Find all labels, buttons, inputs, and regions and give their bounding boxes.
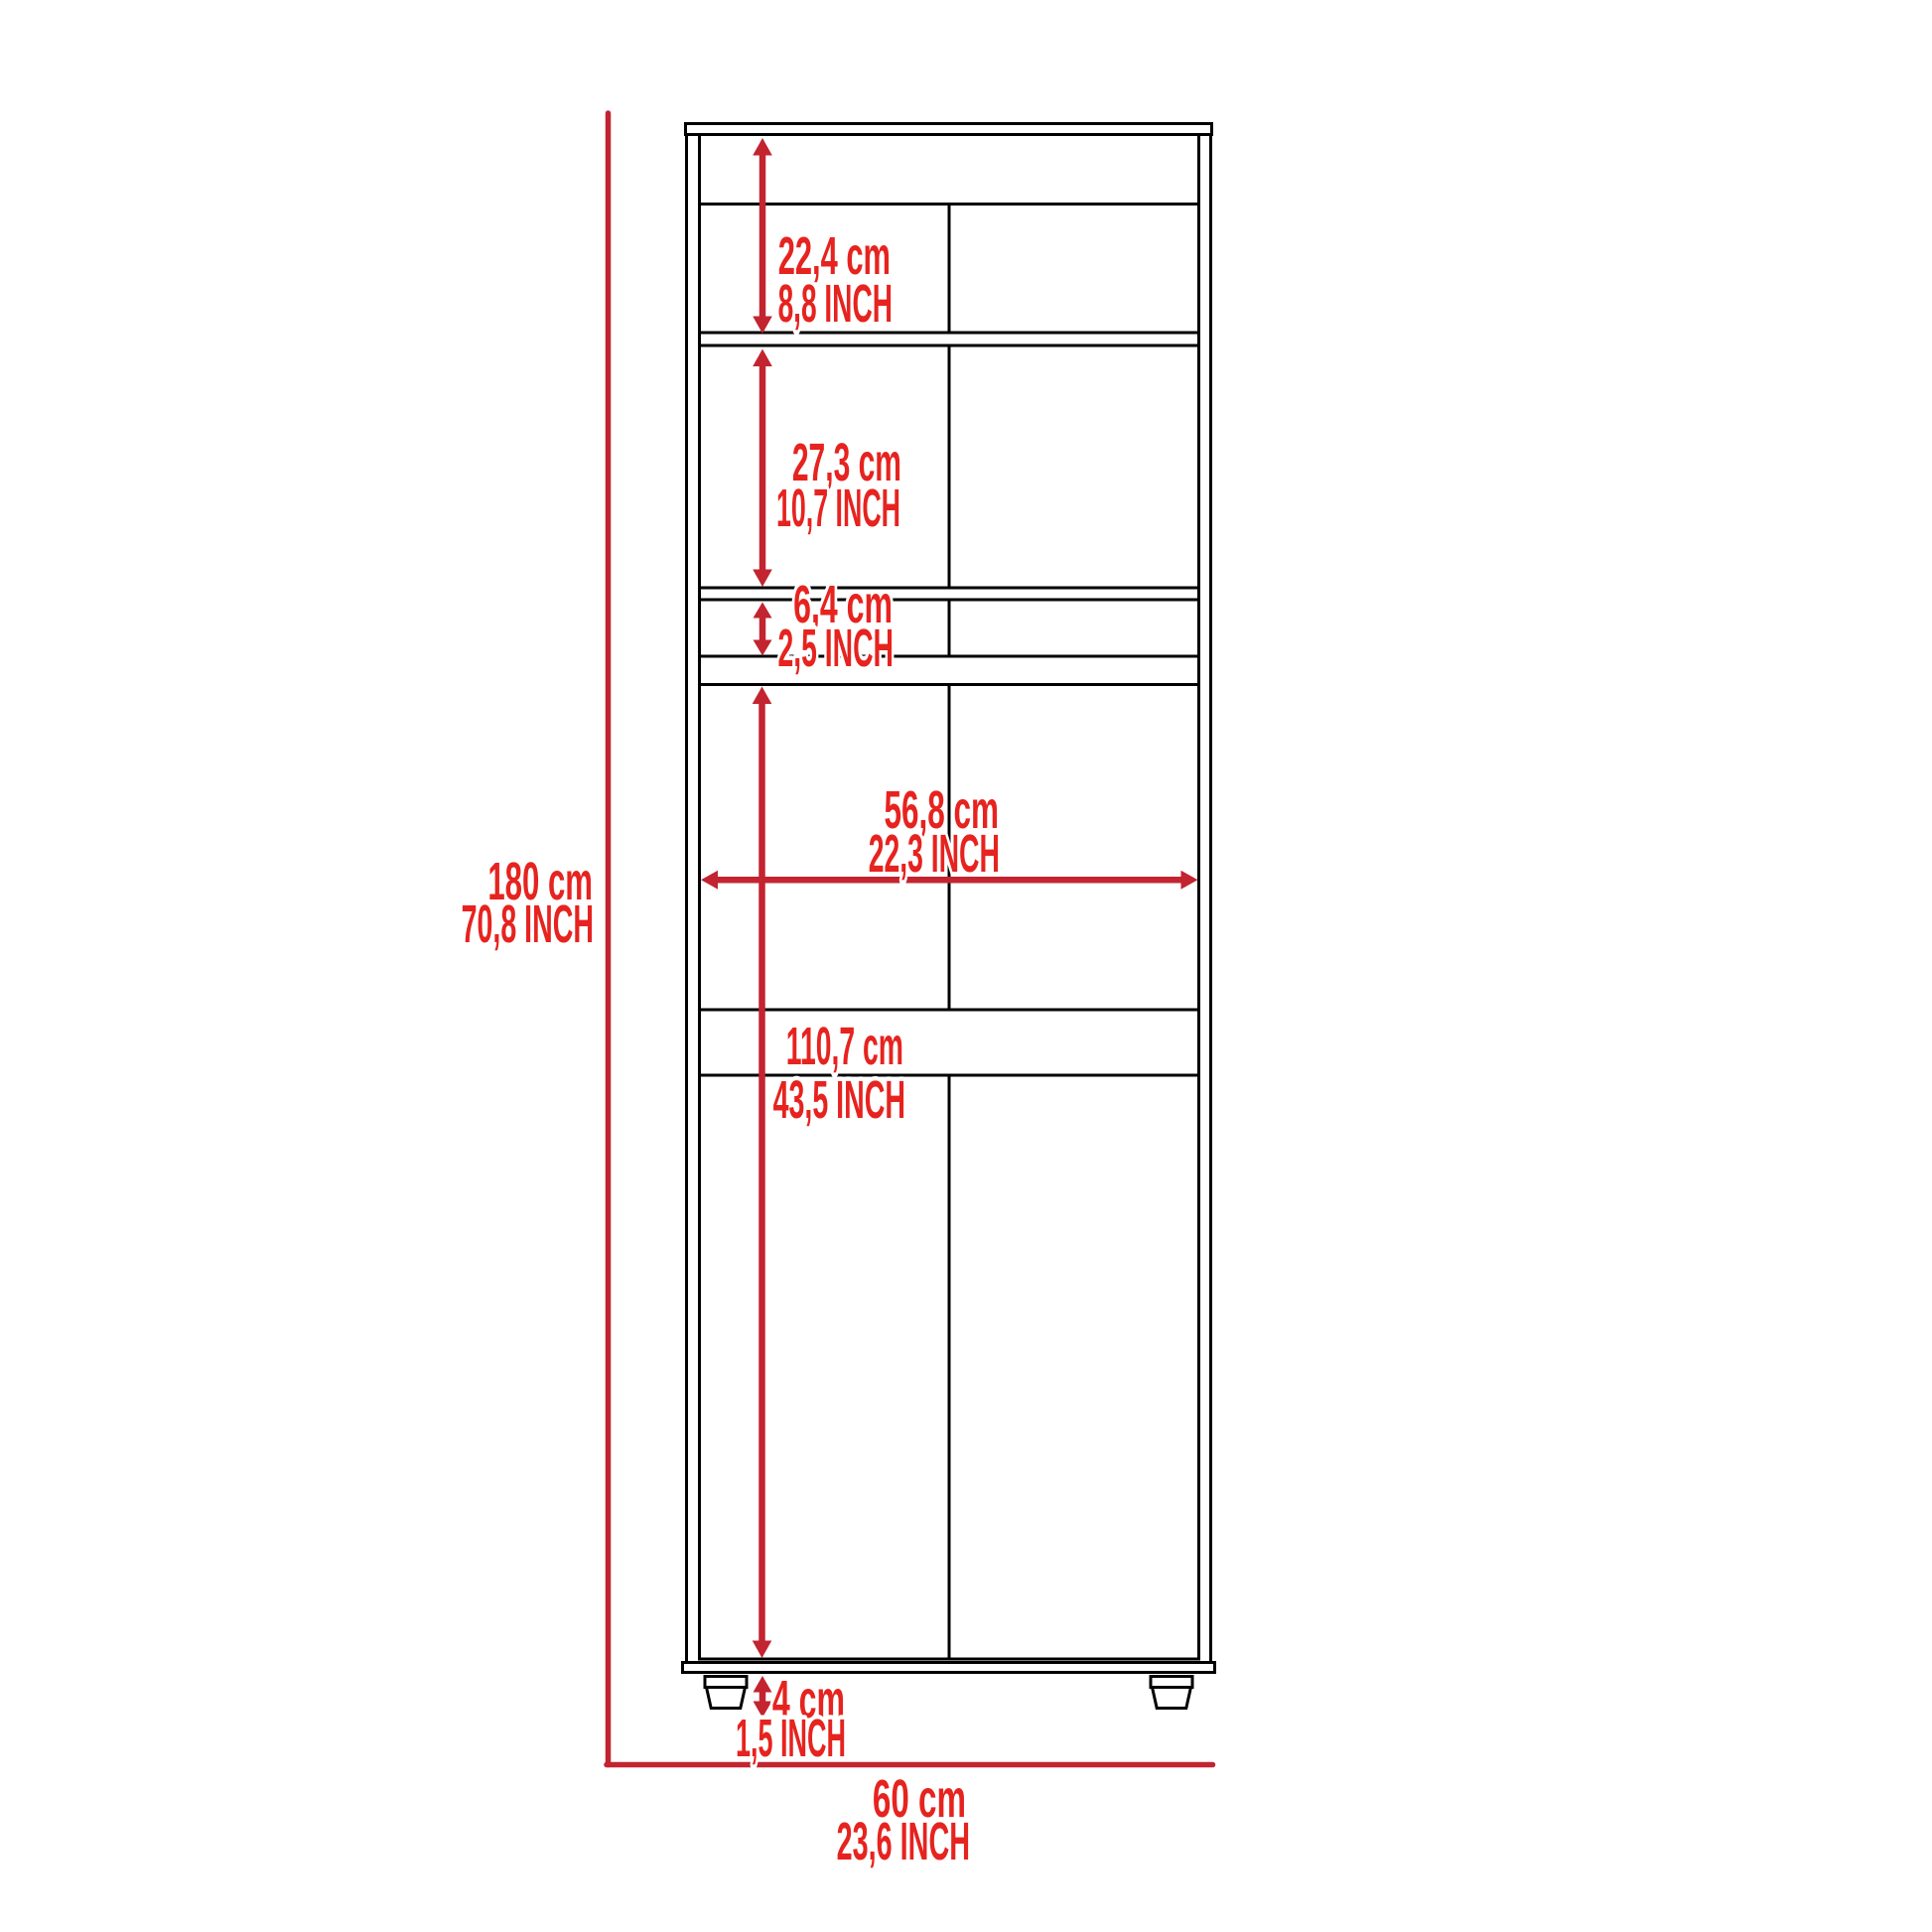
svg-text:23,6 INCH: 23,6 INCH [837,1813,970,1872]
svg-text:1,5 INCH: 1,5 INCH [736,1709,846,1769]
svg-text:70,8 INCH: 70,8 INCH [462,895,594,954]
svg-text:22,3 INCH: 22,3 INCH [869,824,1000,884]
svg-text:2,5 INCH: 2,5 INCH [777,619,894,678]
svg-text:8,8 INCH: 8,8 INCH [778,274,893,334]
svg-text:10,7 INCH: 10,7 INCH [776,479,900,539]
svg-text:110,7 cm: 110,7 cm [786,1017,903,1076]
svg-text:43,5 INCH: 43,5 INCH [773,1070,905,1130]
